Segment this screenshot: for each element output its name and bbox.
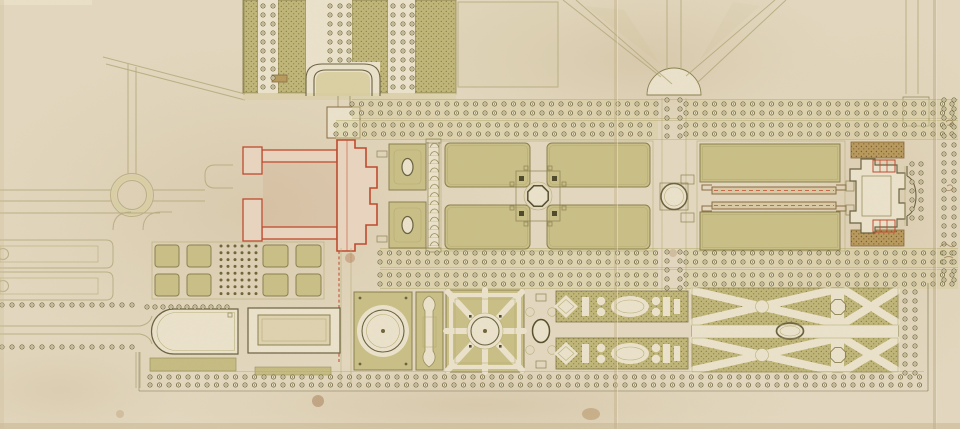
paper-grain: [0, 0, 960, 429]
garden-plan-figure: [0, 0, 960, 429]
garden-plan-drawing: [0, 0, 960, 429]
